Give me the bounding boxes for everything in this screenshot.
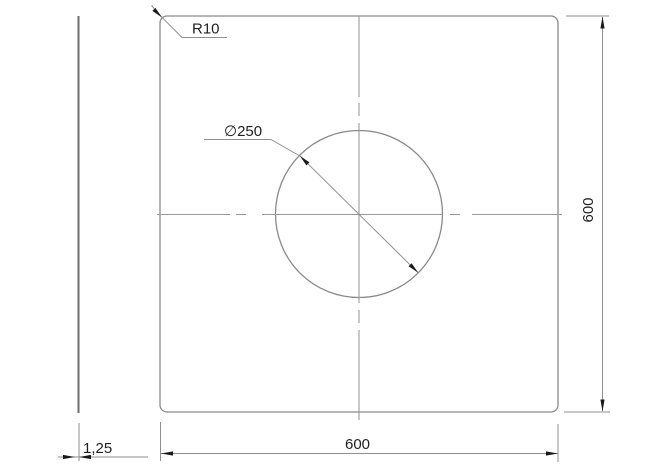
height-arrowhead-bottom-icon	[600, 400, 604, 412]
width-dimension: 600	[161, 422, 559, 462]
plate-width-label: 600	[345, 436, 370, 453]
drawing-canvas: R10 ∅250 600 600	[0, 0, 660, 465]
corner-radius-label: R10	[192, 21, 220, 38]
width-arrowhead-right-icon	[546, 451, 558, 455]
hole-diameter-label: ∅250	[224, 123, 262, 140]
thickness-arrowhead-left-icon	[63, 455, 75, 459]
radius-arrowhead-icon	[152, 8, 162, 18]
height-arrowhead-top-icon	[600, 17, 604, 29]
height-dimension: 600	[564, 16, 610, 412]
corner-radius-annotation: R10	[152, 6, 228, 38]
thickness-label: 1,25	[83, 440, 112, 457]
thickness-dimension: 1,25	[58, 423, 148, 461]
width-arrowhead-left-icon	[161, 451, 173, 455]
technical-drawing: R10 ∅250 600 600	[0, 0, 660, 465]
diameter-leader-line	[204, 140, 300, 157]
plate-height-label: 600	[580, 197, 597, 222]
